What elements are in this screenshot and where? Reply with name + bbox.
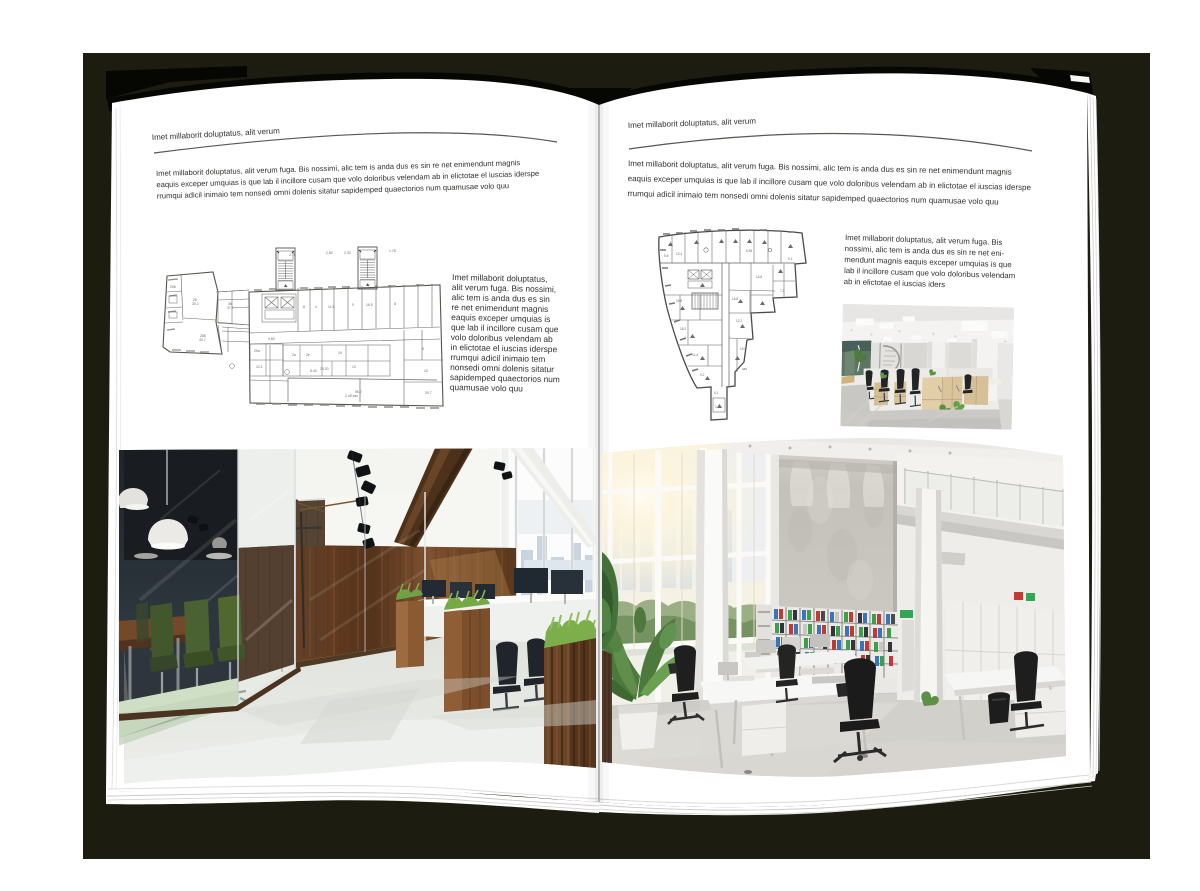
svg-text:2.80: 2.80 <box>326 251 333 255</box>
svg-text:14.6: 14.6 <box>756 275 762 279</box>
svg-text:9.2: 9.2 <box>700 373 705 377</box>
svg-text:19.6: 19.6 <box>740 347 746 351</box>
svg-text:зал: зал <box>742 367 747 371</box>
svg-text:6.1: 6.1 <box>714 391 719 395</box>
svg-text:2a: 2a <box>292 353 296 357</box>
svg-text:10: 10 <box>424 369 428 373</box>
svg-text:11.4: 11.4 <box>692 353 698 357</box>
svg-text:3.2: 3.2 <box>715 405 720 409</box>
svg-text:2e: 2e <box>306 353 310 357</box>
svg-text:19: 19 <box>338 351 342 355</box>
svg-text:16.5: 16.5 <box>366 303 373 307</box>
svg-text:18.2: 18.2 <box>680 327 686 331</box>
svg-text:4: 4 <box>315 305 317 309</box>
svg-text:24.5: 24.5 <box>676 299 682 303</box>
svg-text:8: 8 <box>422 347 424 351</box>
svg-text:16.8: 16.8 <box>732 297 738 301</box>
svg-text:8: 8 <box>303 305 305 309</box>
svg-text:8: 8 <box>394 302 396 306</box>
svg-text:5.43: 5.43 <box>310 369 317 373</box>
svg-text:1.78: 1.78 <box>389 249 396 253</box>
svg-text:25.20: 25.20 <box>320 367 329 371</box>
svg-text:9.1: 9.1 <box>788 257 793 261</box>
svg-text:206: 206 <box>170 285 176 289</box>
svg-text:5.6: 5.6 <box>664 254 669 258</box>
svg-text:4.83: 4.83 <box>268 337 275 341</box>
svg-text:9: 9 <box>352 303 354 307</box>
svg-text:29a: 29a <box>254 349 260 353</box>
svg-text:37.7: 37.7 <box>227 306 234 310</box>
svg-text:2 об зал: 2 об зал <box>345 394 358 398</box>
svg-text:12.4: 12.4 <box>676 252 682 256</box>
svg-text:10: 10 <box>352 365 356 369</box>
svg-text:quamusae volo quu: quamusae volo quu <box>450 382 524 394</box>
svg-text:12.2: 12.2 <box>736 319 742 323</box>
svg-text:11.8: 11.8 <box>328 305 334 309</box>
svg-text:2.30: 2.30 <box>344 251 351 255</box>
svg-text:12.1: 12.1 <box>256 365 263 369</box>
svg-text:6.35: 6.35 <box>746 249 752 253</box>
svg-text:7.2: 7.2 <box>780 289 785 293</box>
svg-text:30.7: 30.7 <box>425 391 432 395</box>
svg-text:2.78: 2.78 <box>289 253 296 257</box>
svg-text:40.7: 40.7 <box>199 338 206 342</box>
svg-text:30.2: 30.2 <box>192 302 199 306</box>
